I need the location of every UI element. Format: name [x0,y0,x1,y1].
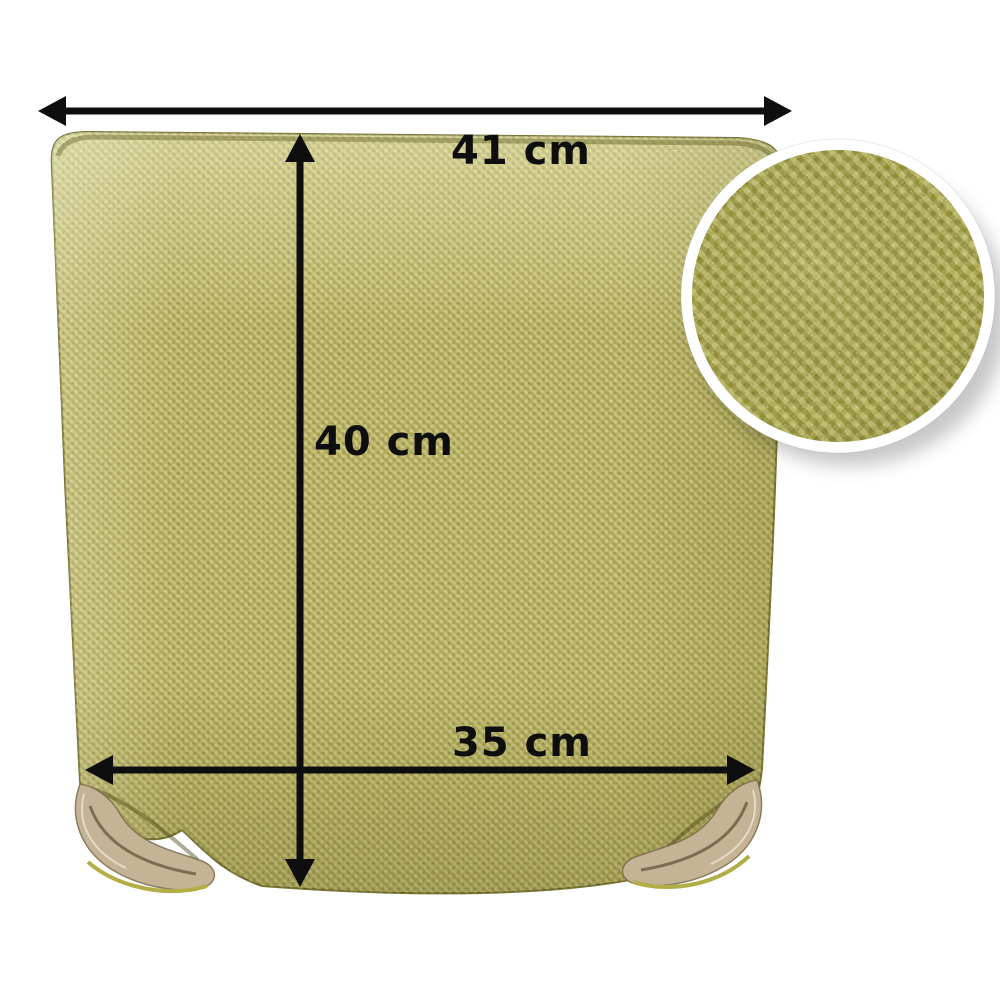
cushion-photo [52,132,783,893]
top-width-label: 41 cm [451,128,591,174]
bottom-width-label: 35 cm [452,720,592,766]
cushion-dimension-diagram: 41 cm 40 cm 35 cm [0,0,1000,1000]
height-label: 40 cm [314,419,454,465]
product-dimension-image: 41 cm 40 cm 35 cm [0,0,1000,1000]
